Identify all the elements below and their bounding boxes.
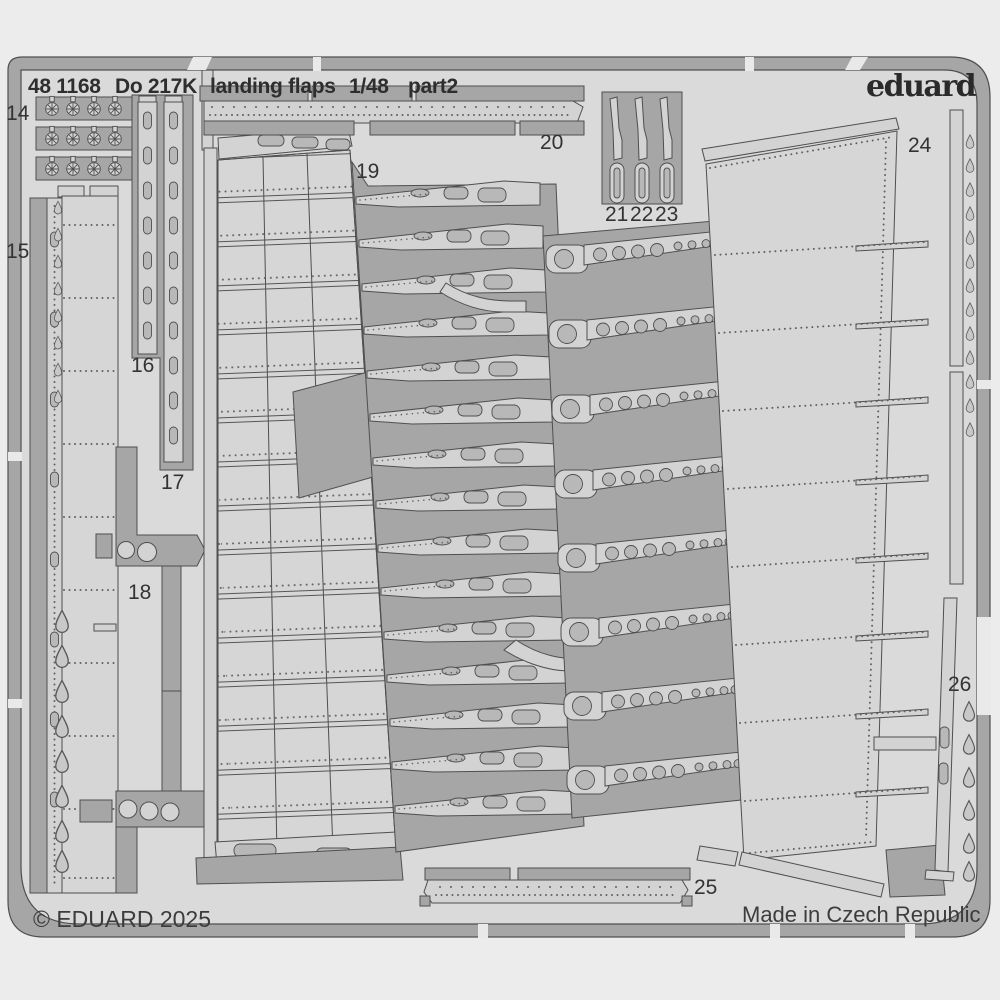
part-label-17: 17 — [161, 471, 184, 494]
part-label-21: 21 — [605, 203, 628, 226]
eduard-logo: eduard — [866, 69, 977, 104]
part-label-14: 14 — [6, 102, 30, 125]
part-25 — [420, 868, 692, 906]
part-15 — [30, 186, 118, 893]
parts-21-22-23 — [602, 92, 682, 204]
part-label-16: 16 — [131, 354, 154, 377]
part-label-20: 20 — [540, 131, 563, 154]
origin-text: Made in Czech Republic — [742, 902, 980, 927]
part-14 — [36, 96, 134, 180]
part-label-23: 23 — [655, 203, 678, 226]
copyright-text: © EDUARD 2025 — [33, 906, 211, 932]
sheet-part-label: part2 — [408, 75, 458, 98]
scale-label: 1/48 — [349, 75, 389, 98]
model-name: Do 217K — [115, 75, 197, 98]
part-label-25: 25 — [694, 876, 717, 899]
part-label-15: 15 — [6, 240, 29, 263]
catalog-number: 48 1168 — [28, 75, 101, 98]
part-label-24: 24 — [908, 134, 932, 157]
photo-etch-fret-image: 48 1168 Do 217K landing flaps 1/48 part2… — [0, 0, 1000, 1000]
part-label-19: 19 — [356, 160, 379, 183]
part-label-26: 26 — [948, 673, 971, 696]
subject-name: landing flaps — [210, 75, 336, 98]
part-label-22: 22 — [630, 203, 653, 226]
part-label-18: 18 — [128, 581, 151, 604]
